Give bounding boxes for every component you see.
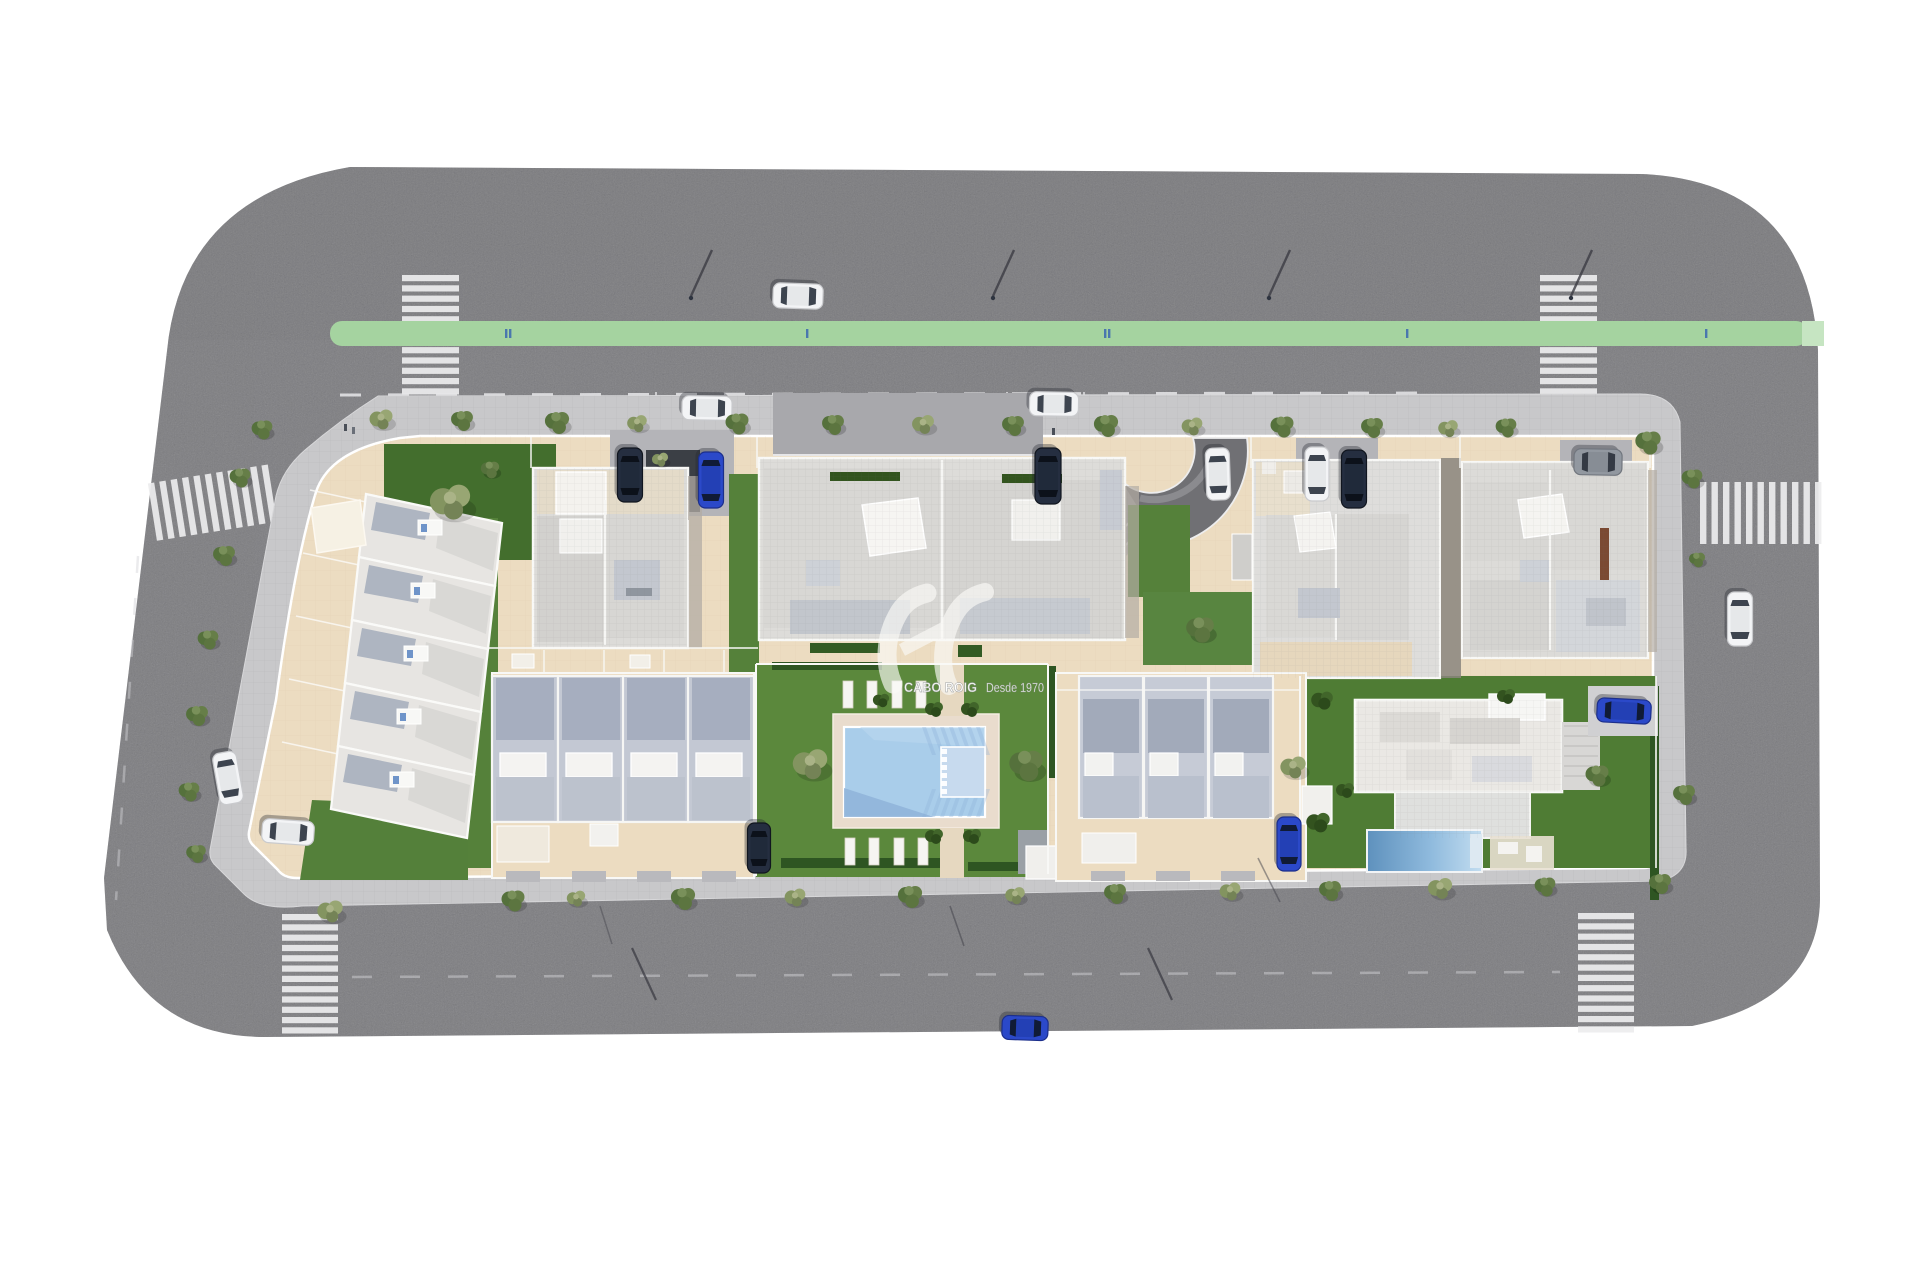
svg-text:CABO ROIG: CABO ROIG — [904, 679, 977, 695]
svg-text:Desde 1970: Desde 1970 — [986, 681, 1044, 695]
